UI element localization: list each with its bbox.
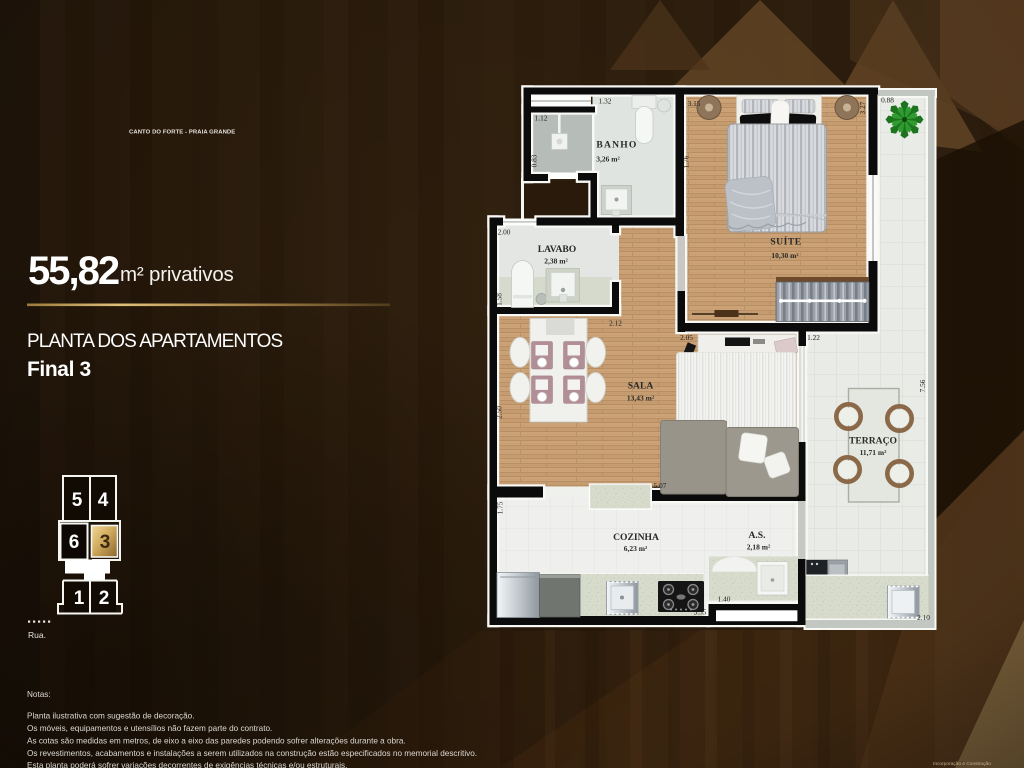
svg-text:COZINHA: COZINHA — [613, 532, 659, 543]
svg-text:5.07: 5.07 — [654, 481, 667, 490]
svg-text:Os móveis, equipamentos e uten: Os móveis, equipamentos e utensílios não… — [27, 724, 272, 733]
svg-text:11,71 m²: 11,71 m² — [860, 448, 888, 457]
svg-text:3,26 m²: 3,26 m² — [596, 155, 620, 164]
svg-text:As cotas são medidas em metros: As cotas são medidas em metros, de eixo … — [27, 737, 406, 746]
svg-text:Os revestimentos, acabamentos: Os revestimentos, acabamentos e instalaç… — [27, 749, 477, 758]
svg-text:4: 4 — [98, 490, 109, 511]
svg-text:1.12: 1.12 — [535, 114, 548, 123]
svg-text:5: 5 — [72, 490, 83, 511]
svg-text:LAVABO: LAVABO — [538, 244, 577, 255]
svg-text:SUÍTE: SUÍTE — [770, 236, 801, 248]
svg-text:1.40: 1.40 — [718, 595, 731, 604]
svg-text:2.10: 2.10 — [917, 613, 930, 622]
svg-text:1.76: 1.76 — [682, 155, 691, 168]
svg-text:Incorporação e Construção: Incorporação e Construção — [933, 761, 991, 767]
svg-text:0.88: 0.88 — [881, 96, 894, 105]
svg-text:Rua.: Rua. — [28, 630, 46, 640]
svg-text:Final 3: Final 3 — [27, 358, 91, 381]
svg-text:6,23 m²: 6,23 m² — [624, 544, 648, 553]
svg-text:3.15: 3.15 — [688, 99, 701, 108]
svg-text:3.55: 3.55 — [694, 608, 707, 617]
svg-text:2.05: 2.05 — [680, 333, 693, 342]
svg-text:0.83: 0.83 — [530, 154, 539, 167]
svg-text:55,82: 55,82 — [28, 249, 119, 293]
svg-text:2.00: 2.00 — [498, 228, 511, 237]
svg-text:3: 3 — [100, 532, 111, 553]
svg-text:A.S.: A.S. — [748, 530, 765, 541]
svg-text:Notas:: Notas: — [27, 690, 51, 699]
svg-text:7.56: 7.56 — [918, 379, 927, 392]
svg-text:BANHO: BANHO — [596, 140, 637, 151]
svg-text:Esta planta poderá sofrer vari: Esta planta poderá sofrer variações deco… — [27, 761, 347, 768]
svg-text:10,30 m²: 10,30 m² — [771, 251, 799, 260]
svg-text:PLANTA DOS APARTAMENTOS: PLANTA DOS APARTAMENTOS — [27, 331, 282, 352]
svg-text:2.50: 2.50 — [495, 406, 504, 419]
svg-text:1.75: 1.75 — [496, 501, 505, 514]
svg-text:1.58: 1.58 — [495, 293, 504, 306]
svg-text:1.32: 1.32 — [599, 97, 612, 106]
svg-text:1.22: 1.22 — [807, 333, 820, 342]
svg-text:TERRAÇO: TERRAÇO — [849, 436, 897, 447]
svg-text:13,43 m²: 13,43 m² — [627, 394, 655, 403]
svg-text:Planta ilustrativa com sugestã: Planta ilustrativa com sugestão de decor… — [27, 712, 194, 721]
svg-text:2,18 m²: 2,18 m² — [747, 543, 771, 552]
svg-text:1: 1 — [74, 588, 85, 609]
svg-text:2.12: 2.12 — [609, 319, 622, 328]
svg-text:6: 6 — [69, 532, 80, 553]
svg-text:3.27: 3.27 — [858, 101, 867, 114]
svg-text:2: 2 — [99, 588, 110, 609]
svg-text:CANTO DO FORTE - PRAIA GRANDE: CANTO DO FORTE - PRAIA GRANDE — [129, 130, 235, 136]
svg-text:SALA: SALA — [628, 381, 654, 392]
svg-text:2,38 m²: 2,38 m² — [544, 257, 568, 266]
svg-text:m² privativos: m² privativos — [120, 263, 234, 286]
